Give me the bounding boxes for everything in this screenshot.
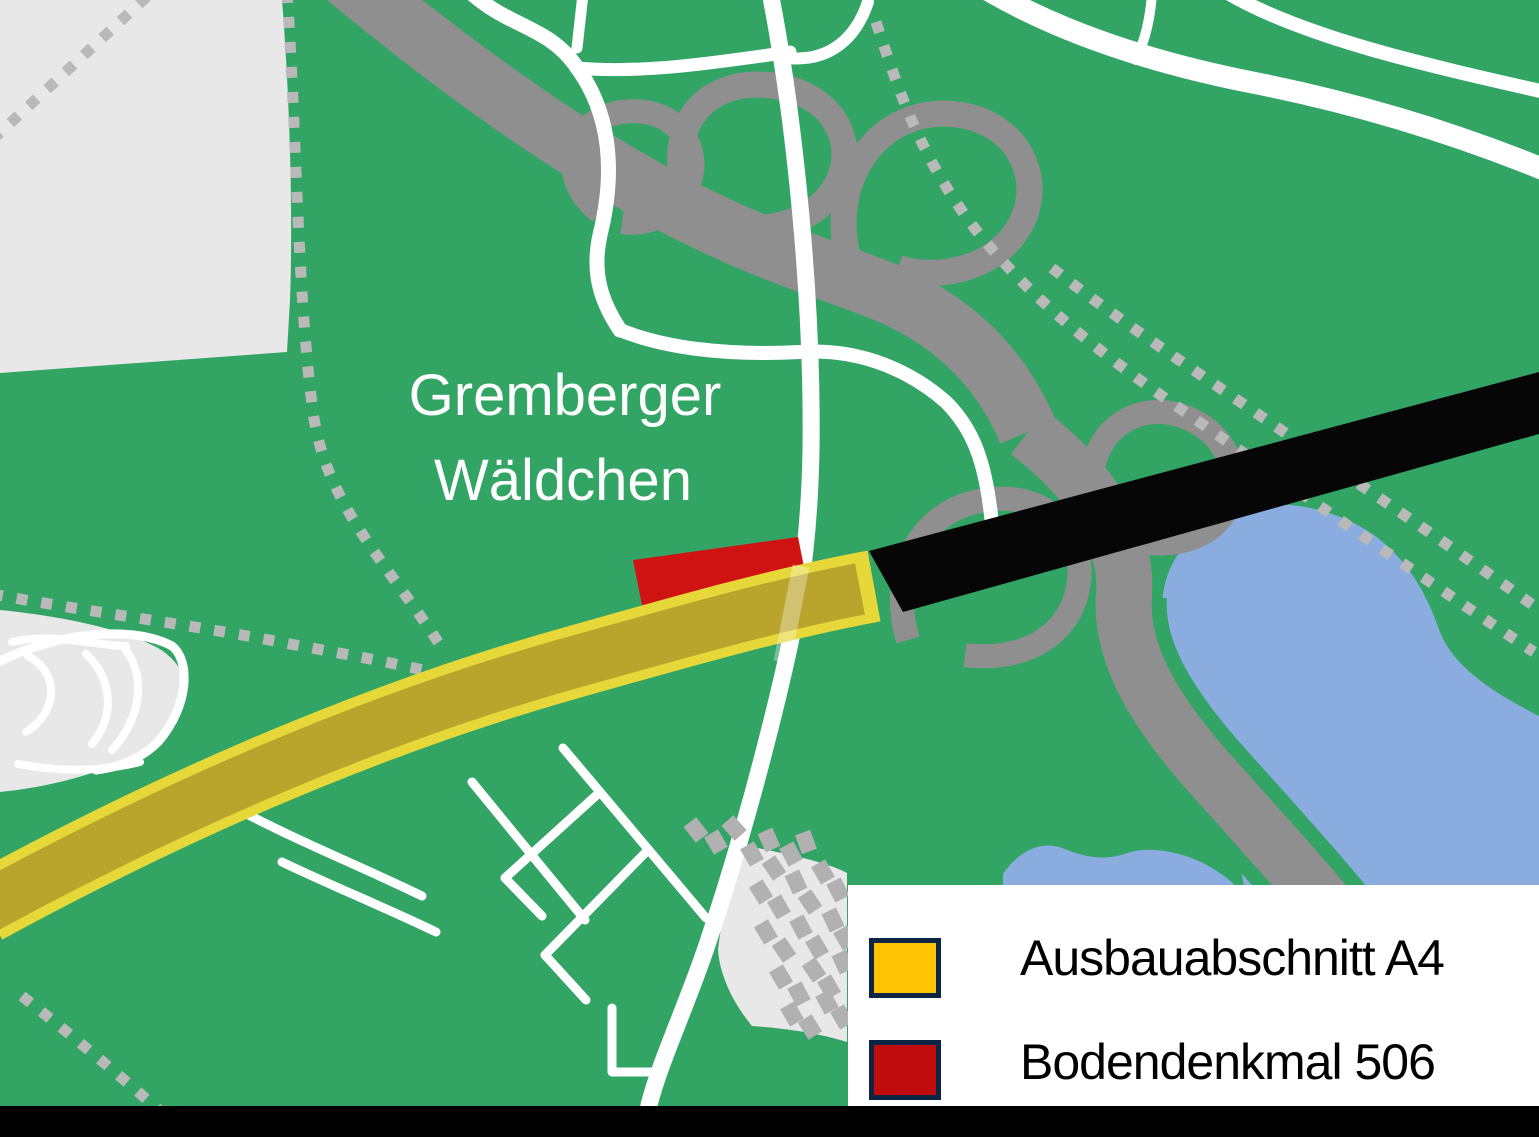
legend-swatch-ausbauabschnitt-icon [869, 938, 941, 998]
map-legend: Ausbauabschnitt A4 Bodendenkmal 506 [848, 885, 1539, 1106]
urban-area-top-left [0, 0, 291, 373]
legend-label-ausbauabschnitt: Ausbauabschnitt A4 [1020, 927, 1444, 989]
legend-label-bodendenkmal: Bodendenkmal 506 [1020, 1031, 1435, 1093]
area-label-line1: Gremberger [409, 363, 722, 428]
road-north-stub [577, 0, 583, 48]
map-figure: Gremberger Wäldchen Ausbauabschnitt A4 B… [0, 0, 1539, 1137]
bottom-bar [0, 1106, 1539, 1137]
area-label-line2: Wäldchen [434, 448, 692, 513]
legend-swatch-bodendenkmal-icon [869, 1040, 941, 1100]
